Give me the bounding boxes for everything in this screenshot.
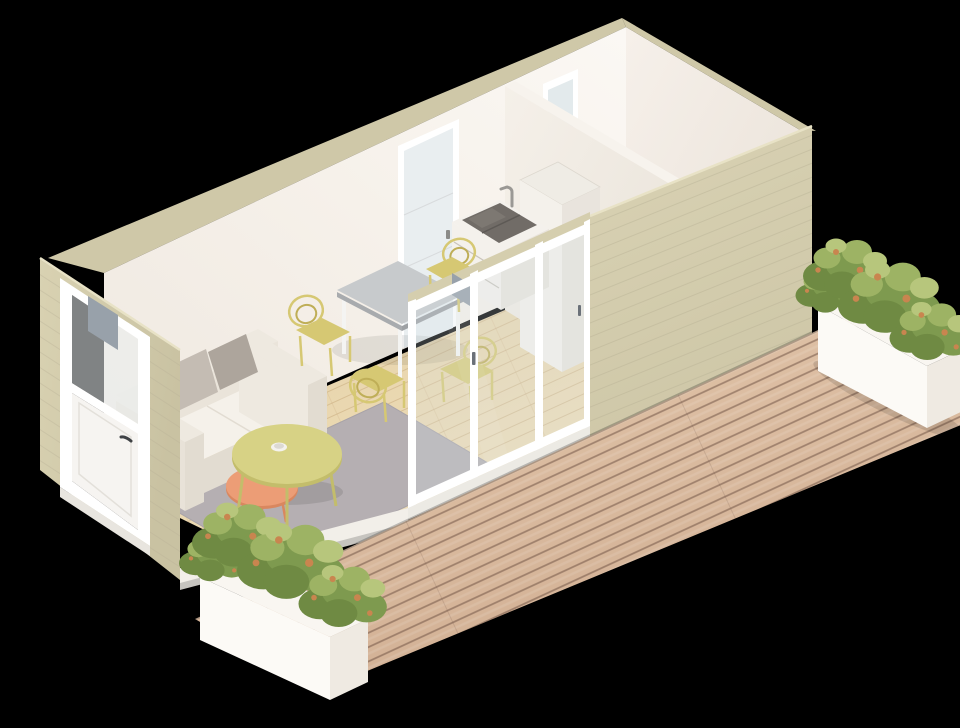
interior-door-handle [446,230,450,239]
cup [274,443,284,449]
isometric-home-render [0,0,960,728]
sliding-door-mullion [408,299,416,515]
sofa-left-armrest-front [185,433,204,511]
sliding-door-mullion [584,219,590,437]
sliding-door-mullion [535,241,543,458]
sliding-door-handle [578,305,581,316]
sliding-door-mullion [470,270,478,487]
coffee-table-top [232,424,342,484]
sliding-door-handle [472,352,476,365]
render-canvas [0,0,960,728]
